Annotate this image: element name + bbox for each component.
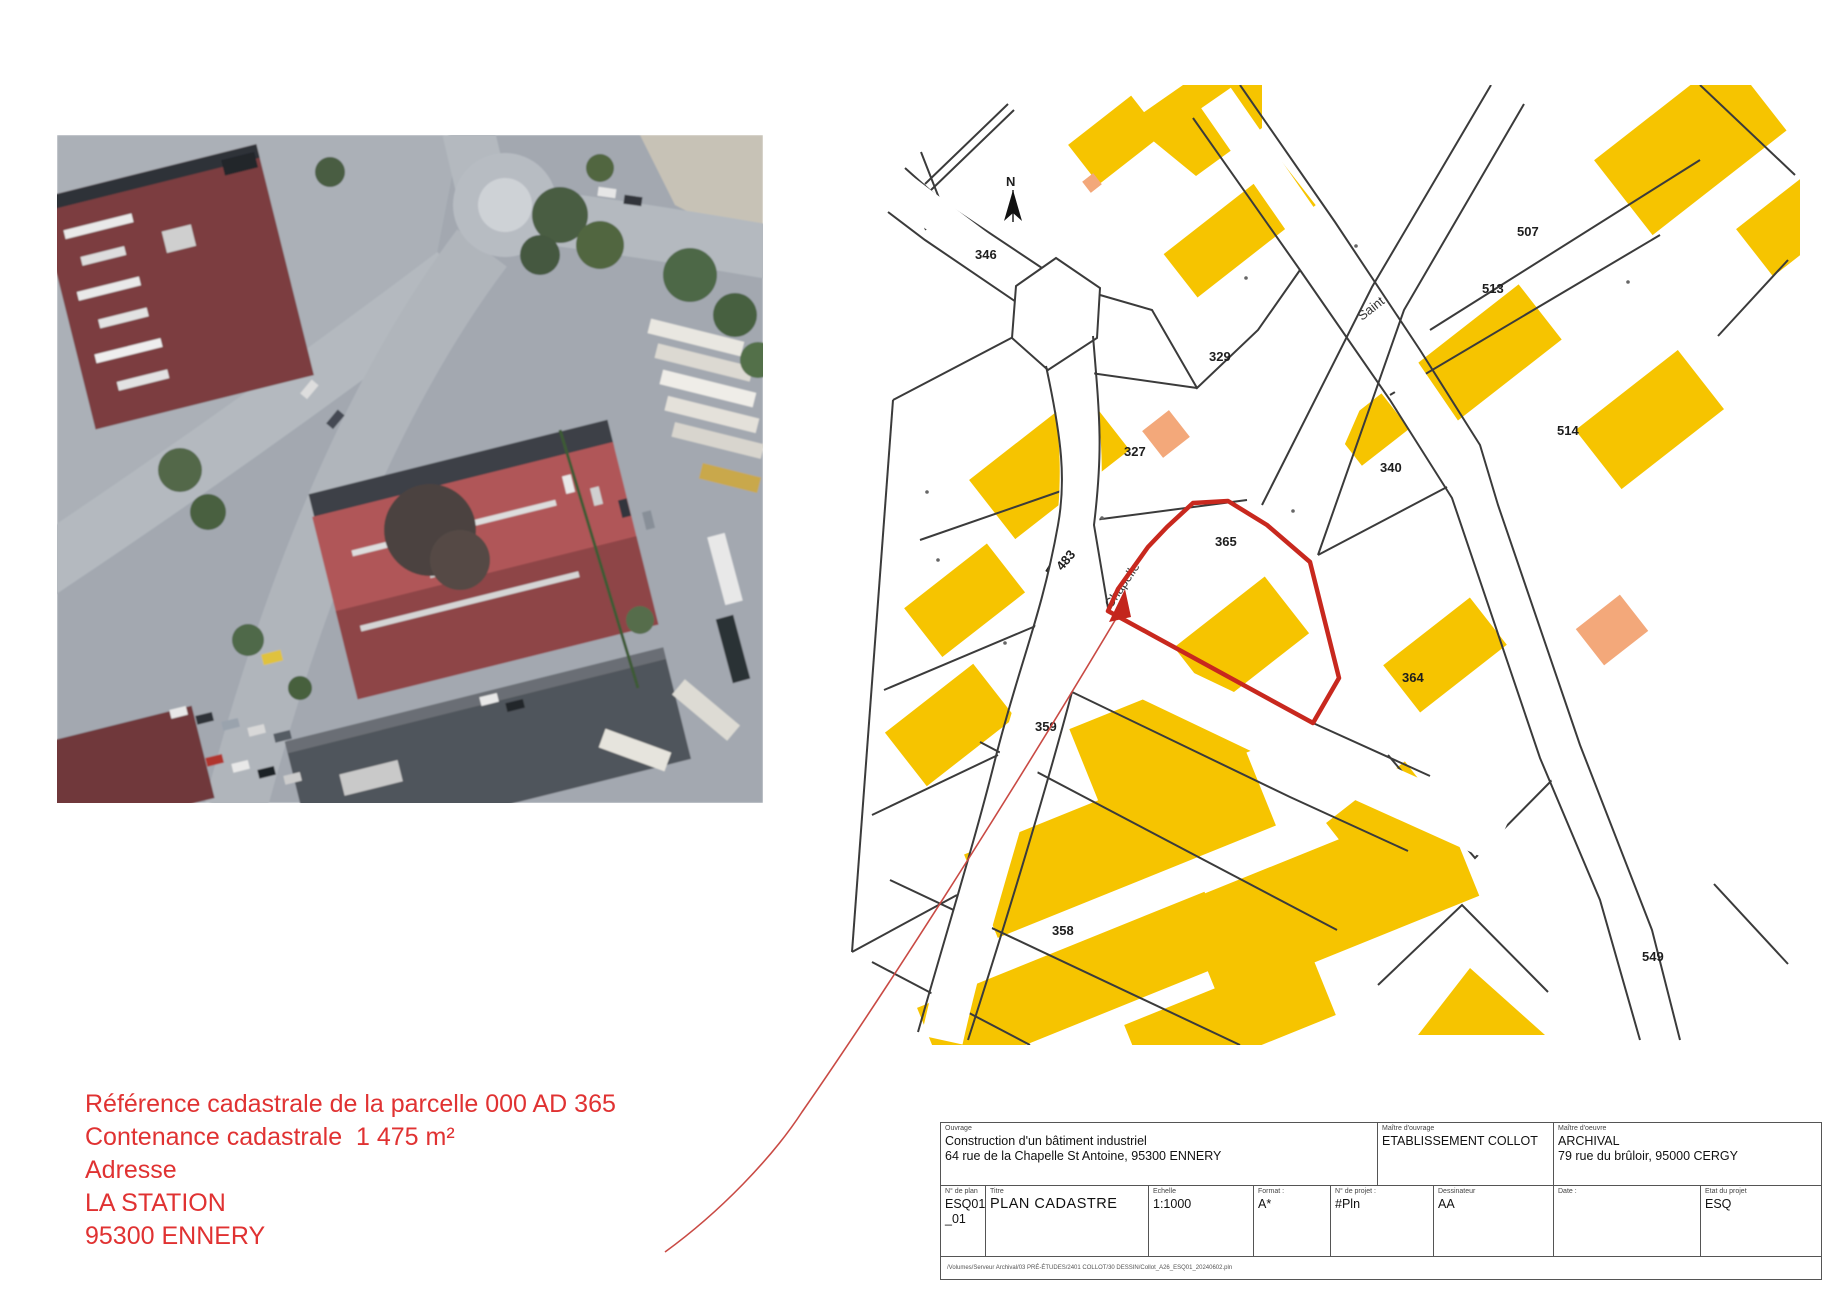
city-line: 95300 ENNERY — [85, 1222, 265, 1250]
dessinateur-label: Dessinateur — [1438, 1188, 1549, 1195]
etat-value: ESQ — [1705, 1197, 1817, 1212]
plan-num-label: N° de plan — [945, 1188, 981, 1195]
cell-echelle: Echelle 1:1000 — [1149, 1186, 1254, 1256]
cell-plan-number: N° de plan ESQ01b _01 — [941, 1186, 986, 1256]
parcel-label-549: 549 — [1642, 949, 1664, 964]
parcel-label-346: 346 — [975, 247, 997, 262]
cadastral-map: N 346 329 327 483 365 340 507 513 514 36… — [782, 56, 1838, 1090]
moa-label: Maître d'ouvrage — [1382, 1125, 1549, 1132]
parcel-label-329: 329 — [1209, 349, 1231, 364]
dessinateur-value: AA — [1438, 1197, 1549, 1212]
cell-format: Format : A* — [1254, 1186, 1331, 1256]
ouvrage-line2: 64 rue de la Chapelle St Antoine, 95300 … — [945, 1149, 1373, 1164]
date-label: Date : — [1558, 1188, 1696, 1195]
title-block: Ouvrage Construction d'un bâtiment indus… — [940, 1122, 1822, 1280]
parcel-label-507: 507 — [1517, 224, 1539, 239]
ouvrage-label: Ouvrage — [945, 1125, 1373, 1132]
titre-value: PLAN CADASTRE — [990, 1197, 1144, 1212]
moe-line2: 79 rue du brûloir, 95000 CERGY — [1558, 1149, 1817, 1164]
plan-sheet: { "annotation": { "line1": "Référence ca… — [0, 0, 1838, 1300]
moe-line1: ARCHIVAL — [1558, 1134, 1817, 1149]
echelle-value: 1:1000 — [1153, 1197, 1249, 1212]
adresse-line: Adresse — [85, 1156, 177, 1184]
aerial-photo — [27, 130, 776, 853]
parcel-label-327: 327 — [1124, 444, 1146, 459]
parcel-label-364: 364 — [1402, 670, 1424, 685]
parcel-label-513: 513 — [1482, 281, 1504, 296]
file-path: /Volumes/Serveur Archival/03 PRÉ-ÉTUDES/… — [947, 1265, 1232, 1271]
projet-value: #Pln — [1335, 1197, 1429, 1212]
titre-label: Titre — [990, 1188, 1144, 1195]
ref-line: Référence cadastrale de la parcelle 000 … — [85, 1090, 616, 1118]
cell-ouvrage: Ouvrage Construction d'un bâtiment indus… — [941, 1123, 1378, 1185]
cell-titre: Titre PLAN CADASTRE — [986, 1186, 1149, 1256]
station-line: LA STATION — [85, 1189, 226, 1217]
cell-maitre-ouvrage: Maître d'ouvrage ETABLISSEMENT COLLOT — [1378, 1123, 1554, 1185]
echelle-label: Echelle — [1153, 1188, 1249, 1195]
ouvrage-line1: Construction d'un bâtiment industriel — [945, 1134, 1373, 1149]
contenance-line: Contenance cadastrale 1 475 m² — [85, 1123, 455, 1151]
parcel-label-340: 340 — [1380, 460, 1402, 475]
north-label: N — [1006, 174, 1015, 189]
projet-label: N° de projet : — [1335, 1188, 1429, 1195]
parcel-label-514: 514 — [1557, 423, 1579, 438]
moe-label: Maître d'oeuvre — [1558, 1125, 1817, 1132]
moa-value: ETABLISSEMENT COLLOT — [1382, 1134, 1549, 1149]
format-value: A* — [1258, 1197, 1326, 1212]
cadastral-reference-note: Référence cadastrale de la parcelle 000 … — [85, 1088, 616, 1253]
etat-label: Etat du projet — [1705, 1188, 1817, 1195]
format-label: Format : — [1258, 1188, 1326, 1195]
parcel-label-358: 358 — [1052, 923, 1074, 938]
cell-maitre-oeuvre: Maître d'oeuvre ARCHIVAL 79 rue du brûlo… — [1554, 1123, 1821, 1185]
cell-numero-projet: N° de projet : #Pln — [1331, 1186, 1434, 1256]
title-block-footer: /Volumes/Serveur Archival/03 PRÉ-ÉTUDES/… — [941, 1257, 1821, 1279]
parcel-label-365: 365 — [1215, 534, 1237, 549]
cell-dessinateur: Dessinateur AA — [1434, 1186, 1554, 1256]
cell-date: Date : — [1554, 1186, 1701, 1256]
plan-num-line2: _01 — [945, 1212, 981, 1227]
cell-etat-projet: Etat du projet ESQ — [1701, 1186, 1821, 1256]
plan-num-line1: ESQ01b — [945, 1197, 981, 1212]
